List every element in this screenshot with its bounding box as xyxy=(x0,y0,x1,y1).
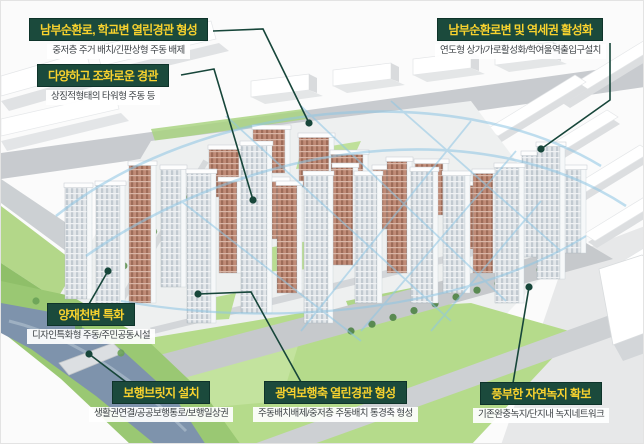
tree-icon xyxy=(410,307,417,314)
tower-gray xyxy=(160,165,187,287)
callout-title: 광역보행축 열린경관 형성 xyxy=(264,381,406,404)
callout-south-ring-school: 남부순환로, 학교변 열린경관 형성 중저층 주거 배치/긴판상형 주동 배제 xyxy=(29,18,208,59)
masterplan-diagram: 남부순환로, 학교변 열린경관 형성 중저층 주거 배치/긴판상형 주동 배제 … xyxy=(0,0,644,444)
tower-gray xyxy=(536,142,566,279)
callout-station-area: 남부순환로변 및 역세권 활성화 연도형 상가/가로활성화/학여울역출입구설치 xyxy=(435,18,606,59)
tower-brick xyxy=(218,177,243,273)
tower-gray xyxy=(410,167,439,303)
tower-brick xyxy=(128,161,157,303)
callout-subtitle: 중저층 주거 배치/긴판상형 주동 배제 xyxy=(47,44,189,59)
leader-dot xyxy=(525,283,532,290)
callout-subtitle: 디자인특화형 주동/주민공동시설 xyxy=(27,329,155,344)
callout-wide-walk-axis: 광역보행축 열린경관 형성 주동배치배제/중저층 주동배치 통경축 형성 xyxy=(253,381,418,422)
tower-brick xyxy=(386,157,413,273)
callout-title: 다양하고 조화로운 경관 xyxy=(37,64,169,87)
leader-dot xyxy=(194,290,201,297)
leader-dot xyxy=(104,267,111,274)
callout-title: 남부순환로변 및 역세권 활성화 xyxy=(437,18,603,41)
callout-title: 풍부한 자연녹지 확보 xyxy=(480,382,601,405)
callout-subtitle: 생활권연결/공공보행통로/보행일상권 xyxy=(89,407,233,422)
callout-diverse-landscape: 다양하고 조화로운 경관 상징적형태의 타워형 주동 등 xyxy=(37,64,169,105)
callout-title: 양재천변 특화 xyxy=(47,303,134,326)
tree-icon xyxy=(117,349,124,356)
callout-yangjae-stream: 양재천변 특화 디자인특화형 주동/주민공동시설 xyxy=(27,303,155,344)
callout-title: 보행브릿지 설치 xyxy=(112,381,210,404)
leader-dot xyxy=(85,350,92,357)
tree-icon xyxy=(389,314,396,321)
callout-subtitle: 연도형 상가/가로활성화/학여울역출입구설치 xyxy=(435,44,606,59)
callout-subtitle: 주동배치배제/중저층 주동배치 통경축 형성 xyxy=(253,407,418,422)
tower-gray xyxy=(494,163,525,303)
tree-icon xyxy=(473,287,480,294)
leader-dot xyxy=(249,196,256,203)
callout-pedestrian-bridge: 보행브릿지 설치 생활권연결/공공보행통로/보행일상권 xyxy=(89,381,233,422)
leader-dot xyxy=(305,119,312,126)
tower-gray xyxy=(95,181,126,317)
leader-dot xyxy=(537,145,544,152)
callout-subtitle: 기존완충녹지/단지내 녹지네트워크 xyxy=(473,408,609,423)
tower-gray xyxy=(240,141,273,313)
callout-green-space: 풍부한 자연녹지 확보 기존완충녹지/단지내 녹지네트워크 xyxy=(473,382,609,423)
tower-brick xyxy=(276,181,303,293)
callout-subtitle: 상징적형태의 타워형 주동 등 xyxy=(46,90,160,105)
callout-title: 남부순환로, 학교변 열린경관 형성 xyxy=(29,18,208,41)
